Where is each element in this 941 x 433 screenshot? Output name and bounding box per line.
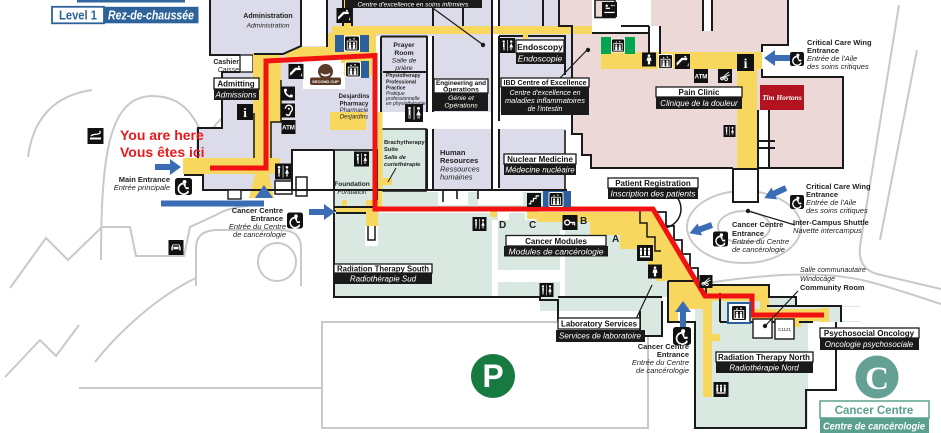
svg-text:Entrée principale: Entrée principale [114, 183, 170, 192]
svg-text:Cashier: Cashier [213, 59, 239, 66]
svg-text:Prayer: Prayer [393, 42, 415, 49]
svg-text:humaines: humaines [440, 173, 473, 182]
svg-text:A: A [612, 234, 619, 245]
svg-text:curiethérapie: curiethérapie [384, 162, 421, 168]
svg-text:Rez-de-chaussée: Rez-de-chaussée [108, 8, 194, 23]
svg-text:IBD Centre of Excellence: IBD Centre of Excellence [504, 78, 587, 87]
svg-text:Desjardins: Desjardins [339, 94, 370, 100]
svg-text:de cancérologie: de cancérologie [732, 245, 785, 254]
svg-text:SECOND CUP: SECOND CUP [312, 79, 339, 84]
svg-text:C: C [865, 361, 889, 397]
svg-text:Radiation Therapy South: Radiation Therapy South [337, 265, 429, 274]
svg-text:Médecine nucléaire: Médecine nucléaire [505, 166, 575, 175]
svg-text:Endoscopy: Endoscopy [517, 42, 563, 52]
svg-text:de cancérologie: de cancérologie [636, 366, 689, 375]
svg-text:Laboratory Services: Laboratory Services [561, 320, 638, 329]
svg-text:Oncologie psychosociale: Oncologie psychosociale [825, 340, 914, 349]
svg-text:Psychosocial Oncology: Psychosocial Oncology [824, 329, 915, 338]
svg-text:Community Room: Community Room [800, 283, 865, 292]
svg-text:Vous êtes ici: Vous êtes ici [120, 144, 205, 160]
svg-text:Admitting: Admitting [217, 80, 254, 89]
svg-text:Operations: Operations [443, 87, 479, 94]
svg-text:Suite: Suite [384, 147, 399, 153]
svg-text:prière: prière [394, 65, 413, 72]
svg-text:de cancérologie: de cancérologie [233, 230, 286, 239]
svg-text:Professional: Professional [386, 79, 417, 85]
svg-text:Patient Registration: Patient Registration [615, 179, 691, 188]
svg-text:Desjardins: Desjardins [340, 115, 368, 121]
svg-text:Physiotherapy: Physiotherapy [386, 73, 421, 79]
svg-text:Salle communautaire: Salle communautaire [800, 267, 866, 274]
svg-text:C1121: C1121 [778, 327, 791, 332]
svg-text:Administration: Administration [245, 23, 289, 30]
svg-text:C: C [529, 220, 536, 231]
svg-text:Tim Hortons: Tim Hortons [762, 93, 802, 102]
svg-text:Caisse: Caisse [218, 67, 240, 74]
svg-text:Salle de: Salle de [392, 58, 417, 65]
svg-text:Centre de cancérologie: Centre de cancérologie [823, 422, 925, 433]
svg-text:Génie et: Génie et [448, 95, 475, 102]
svg-text:de l'intestin: de l'intestin [528, 106, 563, 113]
svg-text:Brachytherapy: Brachytherapy [384, 140, 425, 146]
svg-text:Clinique de la douleur: Clinique de la douleur [660, 99, 738, 108]
svg-text:Fondation: Fondation [338, 189, 367, 196]
svg-text:Admissions: Admissions [215, 91, 257, 100]
svg-text:Salle de: Salle de [384, 155, 407, 161]
svg-text:Administration: Administration [243, 13, 292, 20]
svg-text:Pharmacy: Pharmacy [340, 102, 369, 108]
svg-text:Modules de cancérologie: Modules de cancérologie [509, 248, 605, 257]
svg-text:B: B [580, 216, 587, 227]
svg-text:D: D [499, 220, 506, 231]
svg-text:Cancer Centre: Cancer Centre [732, 220, 783, 229]
svg-text:Endoscopie: Endoscopie [518, 54, 563, 64]
svg-text:Cancer Centre: Cancer Centre [835, 405, 914, 417]
svg-text:Foundation: Foundation [334, 181, 369, 188]
svg-text:Nuclear Medicine: Nuclear Medicine [507, 155, 573, 164]
svg-text:des soins critiques: des soins critiques [806, 206, 868, 215]
svg-text:Radiation Therapy North: Radiation Therapy North [718, 353, 810, 362]
svg-text:Radiothérapie Sud: Radiothérapie Sud [350, 275, 417, 284]
svg-text:Pharmacie: Pharmacie [340, 108, 369, 114]
svg-text:Pain Clinic: Pain Clinic [679, 88, 720, 97]
svg-text:Radiothérapie Nord: Radiothérapie Nord [729, 364, 799, 373]
svg-text:Inscription des patients: Inscription des patients [611, 190, 696, 199]
svg-text:Centre d'excellence en soins i: Centre d'excellence en soins infirmiers [357, 2, 469, 9]
svg-text:Room: Room [394, 50, 413, 57]
svg-text:des soins critiques: des soins critiques [807, 62, 869, 71]
svg-text:maladies inflammatoires: maladies inflammatoires [505, 98, 586, 105]
svg-text:You are here: You are here [120, 127, 204, 143]
svg-text:Services de laboratoire: Services de laboratoire [559, 332, 642, 341]
svg-text:Windocàge: Windocàge [800, 276, 835, 283]
svg-text:P: P [482, 358, 503, 394]
svg-text:Opérations: Opérations [444, 103, 478, 110]
svg-text:Level 1: Level 1 [59, 8, 97, 23]
svg-text:en physiothérapie: en physiothérapie [386, 101, 426, 107]
svg-text:Cancer Modules: Cancer Modules [525, 237, 587, 246]
svg-text:Centre d'excellence en: Centre d'excellence en [510, 90, 581, 97]
svg-text:Navette intercampus: Navette intercampus [793, 226, 862, 235]
